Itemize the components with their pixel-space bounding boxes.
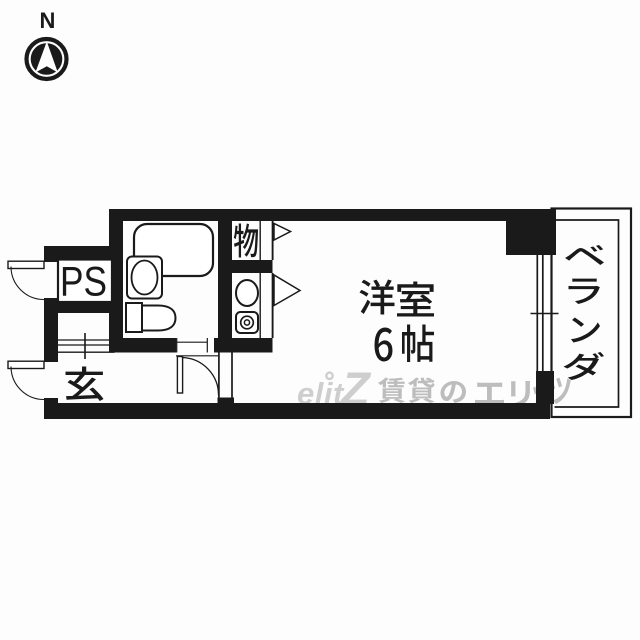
svg-text:PS: PS: [60, 258, 107, 305]
svg-text:N: N: [40, 8, 56, 33]
